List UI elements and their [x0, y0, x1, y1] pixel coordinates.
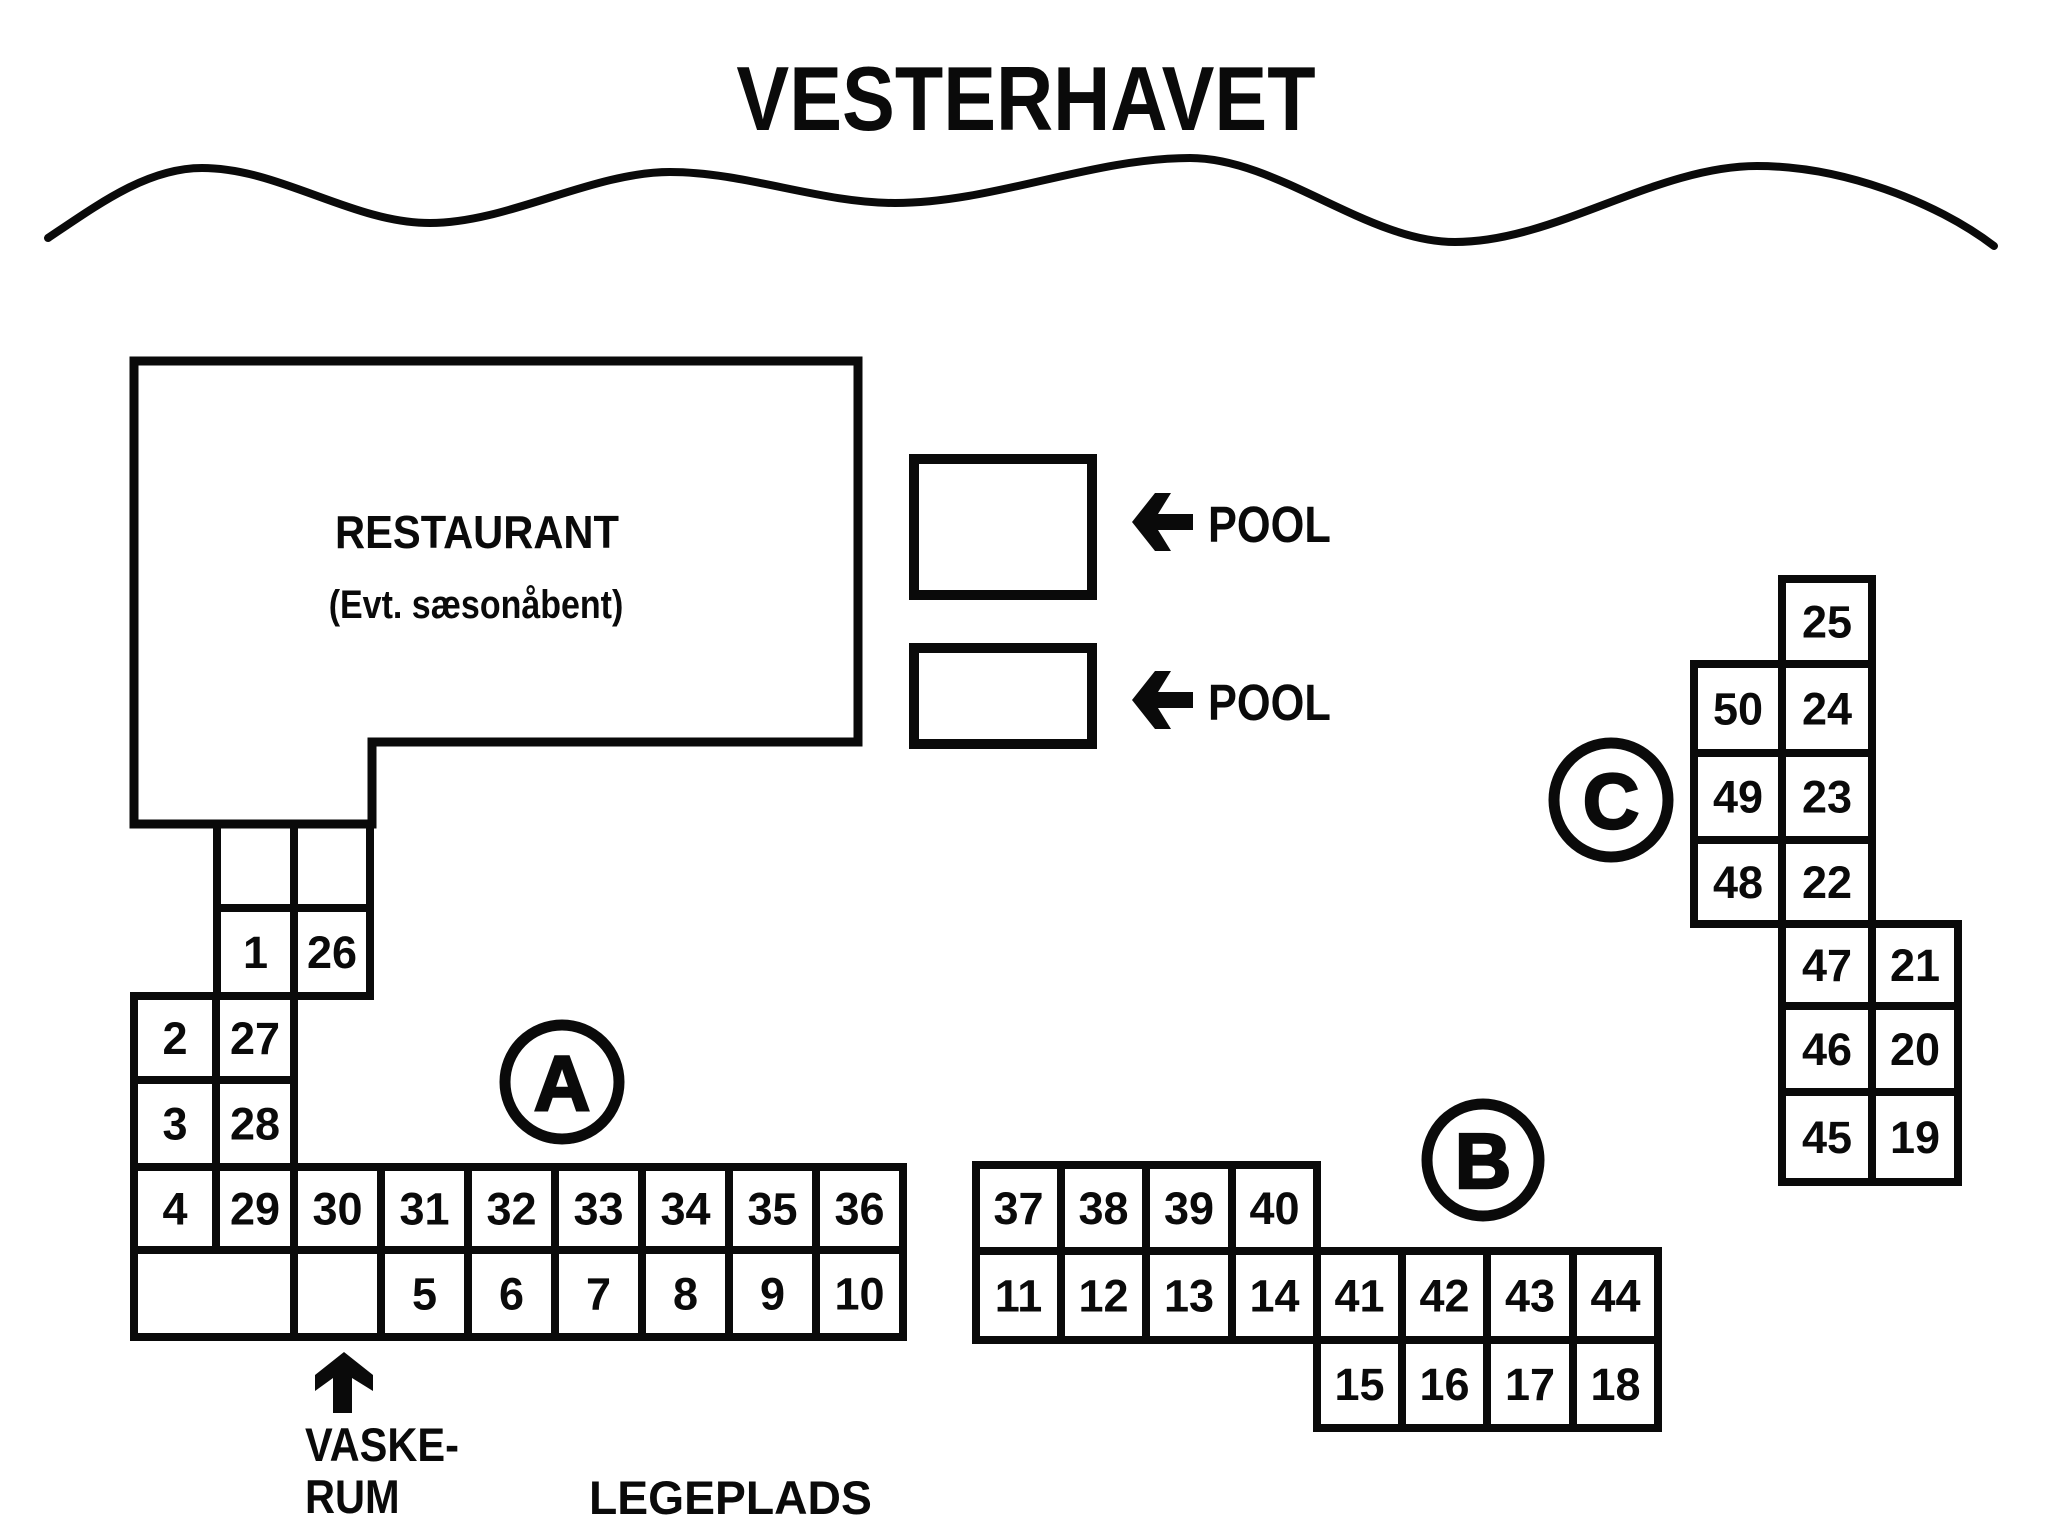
svg-text:15: 15 [1334, 1359, 1384, 1410]
svg-text:50: 50 [1713, 684, 1763, 735]
svg-text:12: 12 [1078, 1271, 1128, 1322]
svg-text:16: 16 [1419, 1359, 1469, 1410]
svg-text:A: A [534, 1039, 590, 1127]
svg-text:POOL: POOL [1208, 675, 1331, 732]
svg-text:48: 48 [1713, 857, 1763, 908]
svg-text:10: 10 [834, 1269, 884, 1320]
svg-text:27: 27 [230, 1013, 280, 1064]
svg-text:35: 35 [747, 1184, 797, 1235]
svg-text:46: 46 [1802, 1024, 1852, 1075]
svg-text:13: 13 [1164, 1271, 1214, 1322]
svg-text:3: 3 [162, 1099, 187, 1150]
svg-text:(Evt. sæsonåbent): (Evt. sæsonåbent) [329, 581, 624, 626]
svg-text:26: 26 [307, 927, 357, 978]
svg-text:LEGEPLADS: LEGEPLADS [589, 1472, 872, 1524]
svg-text:41: 41 [1334, 1271, 1384, 1322]
svg-text:11: 11 [995, 1271, 1043, 1322]
svg-text:44: 44 [1590, 1271, 1640, 1322]
svg-text:38: 38 [1078, 1183, 1128, 1234]
svg-text:2: 2 [162, 1013, 187, 1064]
svg-text:21: 21 [1890, 940, 1940, 991]
svg-text:39: 39 [1164, 1183, 1214, 1234]
svg-text:6: 6 [499, 1269, 524, 1320]
svg-text:4: 4 [162, 1184, 187, 1235]
svg-text:C: C [1583, 757, 1639, 845]
svg-text:34: 34 [660, 1184, 710, 1235]
svg-text:17: 17 [1505, 1359, 1555, 1410]
svg-text:18: 18 [1590, 1359, 1640, 1410]
svg-text:45: 45 [1802, 1112, 1852, 1163]
svg-text:RESTAURANT: RESTAURANT [335, 507, 619, 558]
svg-text:POOL: POOL [1208, 497, 1331, 554]
svg-text:25: 25 [1802, 597, 1852, 648]
svg-text:31: 31 [399, 1184, 449, 1235]
svg-text:40: 40 [1249, 1183, 1299, 1234]
svg-text:9: 9 [760, 1269, 785, 1320]
svg-text:1: 1 [243, 927, 268, 978]
svg-text:32: 32 [486, 1184, 536, 1235]
svg-text:29: 29 [230, 1184, 280, 1235]
svg-text:30: 30 [312, 1184, 362, 1235]
svg-text:8: 8 [673, 1269, 698, 1320]
svg-text:42: 42 [1419, 1271, 1469, 1322]
svg-text:14: 14 [1249, 1271, 1299, 1322]
svg-text:37: 37 [993, 1183, 1043, 1234]
svg-text:23: 23 [1802, 772, 1852, 823]
svg-text:VESTERHAVET: VESTERHAVET [736, 49, 1315, 150]
svg-text:49: 49 [1713, 772, 1763, 823]
svg-text:RUM: RUM [305, 1472, 400, 1524]
svg-text:5: 5 [412, 1269, 437, 1320]
svg-text:22: 22 [1802, 857, 1852, 908]
svg-text:36: 36 [834, 1184, 884, 1235]
svg-text:7: 7 [586, 1269, 611, 1320]
svg-text:B: B [1455, 1117, 1511, 1205]
svg-text:28: 28 [230, 1099, 280, 1150]
svg-text:47: 47 [1802, 940, 1852, 991]
svg-text:24: 24 [1802, 684, 1852, 735]
svg-text:19: 19 [1890, 1112, 1940, 1163]
svg-text:33: 33 [573, 1184, 623, 1235]
svg-text:43: 43 [1505, 1271, 1555, 1322]
svg-text:20: 20 [1890, 1024, 1940, 1075]
svg-text:VASKE-: VASKE- [305, 1420, 459, 1472]
